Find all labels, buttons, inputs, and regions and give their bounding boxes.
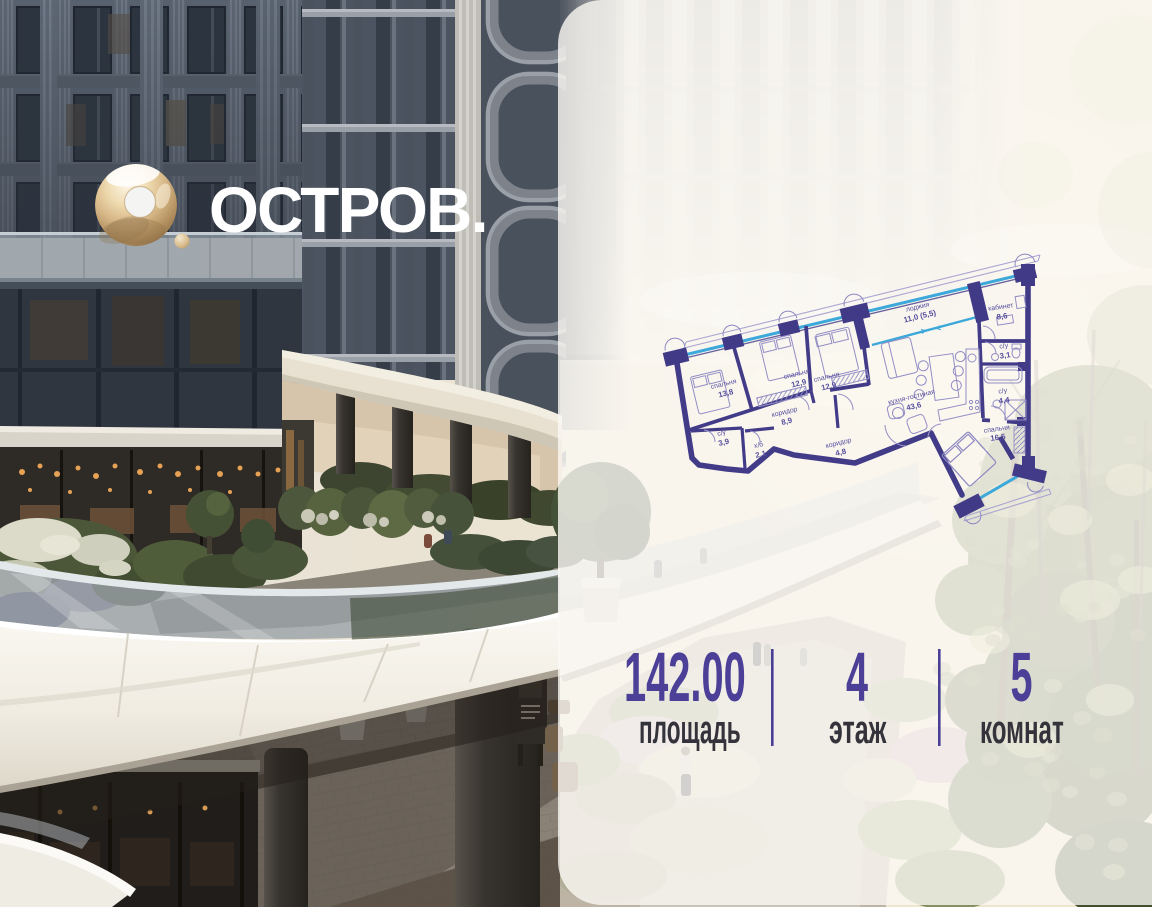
- svg-text:ОСТРОВ.: ОСТРОВ.: [209, 174, 487, 246]
- svg-text:этаж: этаж: [829, 708, 887, 752]
- svg-text:3,1: 3,1: [999, 350, 1012, 361]
- svg-text:с/у: с/у: [999, 342, 1009, 350]
- svg-text:8,6: 8,6: [996, 311, 1009, 322]
- svg-text:с/у: с/у: [998, 387, 1008, 395]
- svg-text:площадь: площадь: [639, 707, 741, 751]
- svg-text:142.00: 142.00: [624, 640, 746, 717]
- svg-text:5: 5: [1011, 638, 1033, 715]
- svg-text:комнат: комнат: [980, 707, 1064, 752]
- svg-text:4: 4: [846, 638, 868, 715]
- svg-text:4,4: 4,4: [998, 395, 1011, 406]
